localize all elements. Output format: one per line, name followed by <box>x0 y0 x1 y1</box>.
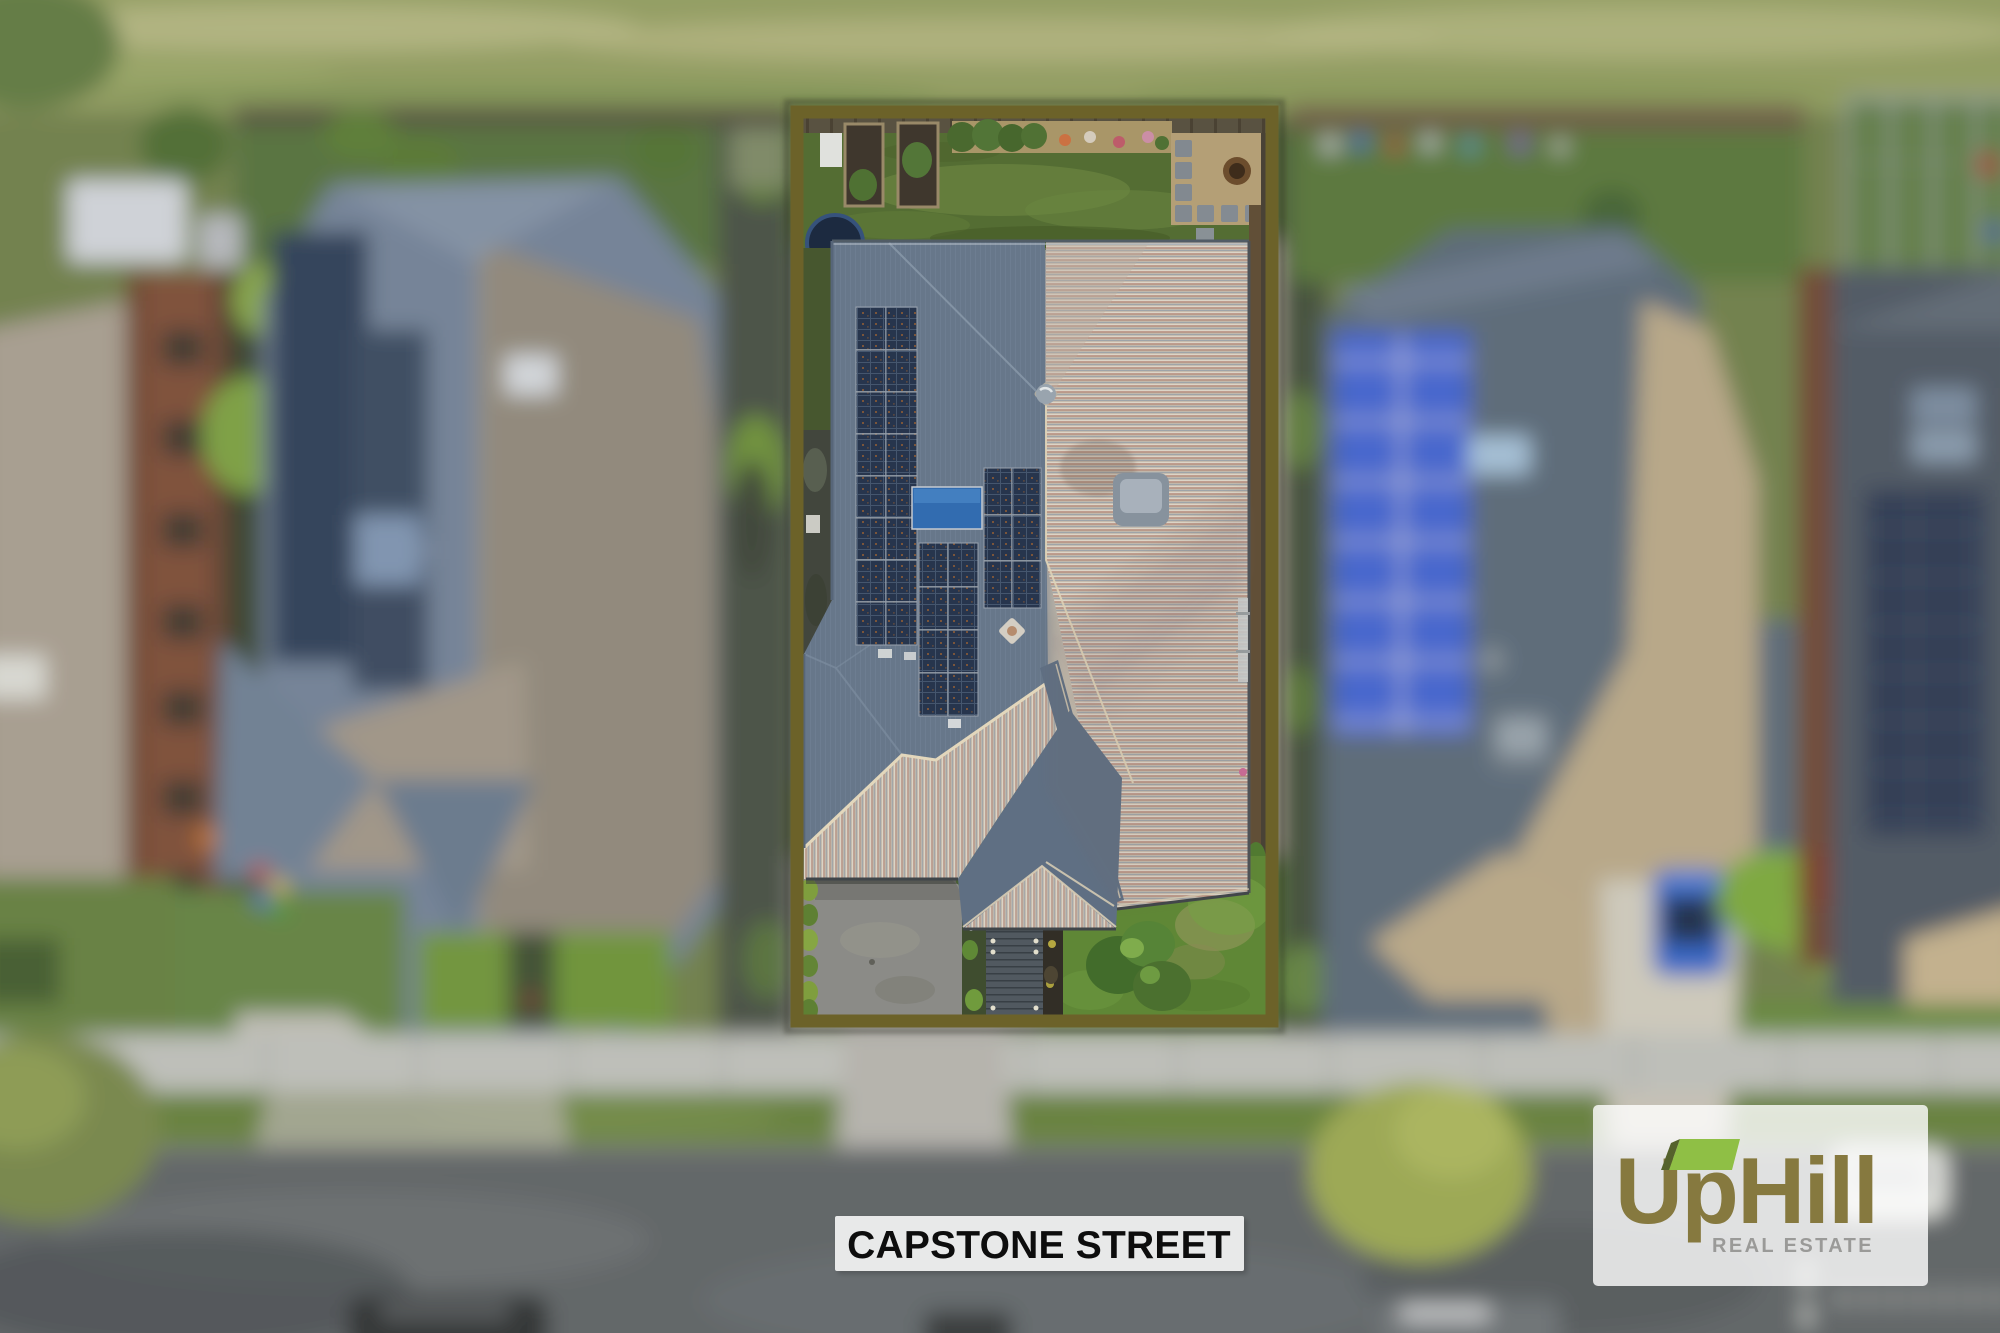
svg-text:UpHill: UpHill <box>1615 1138 1878 1243</box>
svg-text:CAPSTONE STREET: CAPSTONE STREET <box>847 1224 1231 1267</box>
svg-text:REAL ESTATE: REAL ESTATE <box>1712 1235 1874 1257</box>
